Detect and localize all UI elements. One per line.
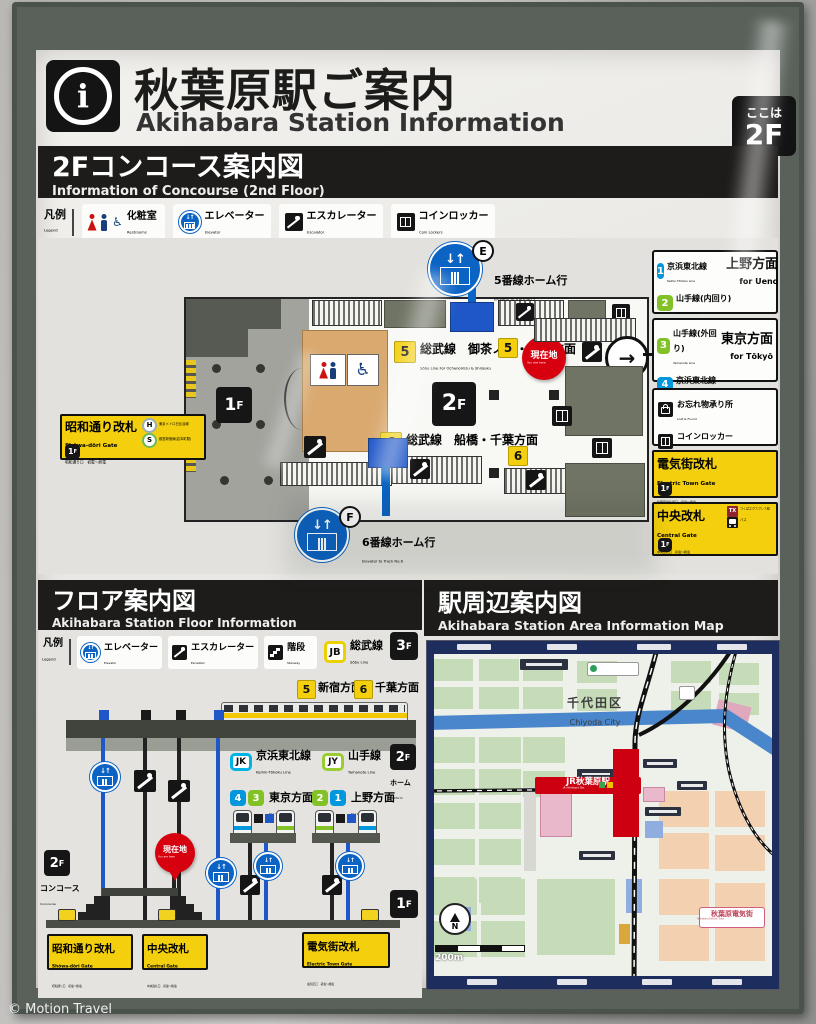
concourse-title-ja: 2Fコンコース案内図	[52, 145, 778, 184]
elevator-icon: ↓↑	[336, 852, 364, 880]
stairs-steps	[94, 896, 110, 904]
concourse-floor-bar	[102, 888, 178, 896]
escalator-icon	[168, 780, 190, 802]
platform-marker-elevator	[265, 814, 274, 823]
coin-locker-icon	[552, 406, 572, 426]
services-box: お忘れ物承り所Lost & Found コインロッカーCoin Lockers …	[652, 388, 778, 446]
elevator-shaft	[450, 302, 494, 332]
structure-block	[186, 327, 248, 357]
coin-locker-icon	[397, 213, 415, 231]
area-title-ja: 駅周辺案内図	[438, 583, 778, 618]
floor-title-ja: フロア案内図	[52, 581, 422, 616]
electric-town-gate-box: 電気街改札 Electric Town Gate 秋葉原電気街口 初電～終電 1…	[652, 450, 778, 498]
floor-1f-badge: 1F	[216, 387, 252, 423]
escalator-icon	[516, 303, 534, 321]
platform-marker	[176, 710, 186, 720]
train-front-yamanote	[276, 810, 295, 835]
scale-bar	[435, 945, 525, 952]
compass-needle	[450, 908, 460, 922]
legend-escalator: エスカレーターEscalator	[279, 204, 383, 240]
platform-marker	[336, 814, 345, 823]
platform-marker-elevator	[99, 710, 109, 720]
train-front-keihin	[358, 810, 377, 835]
platform-marker-elevator	[347, 814, 356, 823]
escalator-icon	[240, 875, 260, 895]
ueno-direction-box: 1 京浜東北線Keihin-Tōhoku Line 上野方面for Ueno 2…	[652, 250, 778, 314]
track3-badge: 3	[657, 338, 670, 354]
man-icon	[100, 214, 108, 231]
watermark: © Motion Travel	[8, 1002, 112, 1017]
gate-marker-yellow	[58, 909, 76, 921]
floor-1f-mini-badge: 1F	[658, 538, 672, 552]
area-section-title: 駅周辺案内図 Akihabara Station Area Informatio…	[424, 580, 778, 636]
strip-label	[457, 644, 491, 650]
train-front-keihin	[233, 810, 252, 835]
map-border-strip-right	[772, 654, 779, 976]
area-title-en: Akihabara Station Area Information Map	[438, 618, 778, 633]
stairs-steps	[86, 904, 110, 912]
elevator-icon: ↓↑	[206, 858, 236, 888]
electric-town-label: 秋葉原電気街Akihabara Electric Town	[699, 907, 765, 928]
map-border-strip-left	[427, 654, 434, 976]
track4-badge: 4	[230, 790, 246, 806]
jk-line-key: JK 京浜東北線Keihin-Tōhoku Line	[230, 746, 312, 778]
platform-marker	[141, 710, 151, 720]
windshield	[236, 813, 249, 822]
transfer-dot	[599, 782, 605, 788]
sign-board: i 秋葉原駅ご案内 Akihabara Station Information …	[36, 50, 780, 988]
legend-elevator: ↓↑ エレベーターElevator	[173, 204, 271, 240]
woman-icon	[88, 214, 96, 231]
track5-badge: 5	[297, 680, 316, 699]
elevator-line	[216, 738, 220, 922]
escalator-icon	[172, 645, 187, 660]
street-name-chip	[643, 759, 677, 768]
bus-icon	[727, 517, 738, 528]
train-yellow-stripe	[222, 713, 407, 718]
elevator-icon: ↓↑	[81, 643, 100, 662]
station-name-chip	[520, 659, 568, 670]
district-label: 千代田区Chiyoda City	[567, 693, 623, 730]
street-name-chip	[579, 851, 615, 860]
strip-label	[712, 979, 742, 985]
stairs-steps	[170, 896, 186, 904]
floor-1f-badge: 1F	[65, 444, 80, 459]
platform-marker	[254, 814, 263, 823]
page-title-en: Akihabara Station Information	[136, 108, 565, 137]
platform-2f-bar	[230, 833, 296, 843]
you-are-here-balloon: 現在地You are here	[155, 833, 195, 873]
legend-restrooms: ♿ 化粧室Restrooms	[82, 204, 164, 240]
direction-tokyo: 東京方面for Tōkyō	[721, 330, 773, 362]
windshield	[279, 813, 292, 822]
wheelchair-icon: ♿	[112, 215, 123, 229]
legend-coin-lockers: コインロッカーCoin Lockers	[391, 204, 495, 240]
stripe	[359, 826, 376, 830]
floor-2f-badge: 2F	[390, 744, 416, 770]
track2-badge: 2	[657, 295, 673, 311]
track5-badge-small: 5	[498, 338, 518, 358]
escalator-icon	[304, 436, 326, 458]
floor-2f-badge: 2F	[432, 382, 476, 426]
track6-badge: 6	[354, 680, 373, 699]
electric-town-gate-label: 電気街改札 Electric Town Gate 電気街口 初電～終電	[302, 932, 390, 968]
jb-line-badge: JB	[324, 641, 346, 663]
jy-line-key: JY 山手線Yamanote Line	[322, 746, 392, 778]
jk-line-badge: JK	[230, 753, 252, 771]
strip-label	[467, 979, 497, 985]
coin-locker-icon	[658, 434, 673, 449]
escalator-icon	[134, 770, 156, 792]
stairs-steps	[78, 912, 110, 920]
shadow-blob	[286, 500, 656, 575]
stripe	[234, 826, 251, 830]
man-icon	[329, 362, 337, 379]
escalator-icon	[410, 459, 430, 479]
floor-diagram: 5 新宿方面for Shinjuku 6 千葉方面for Chiba ↓↑ ↓↑	[38, 662, 422, 992]
stripe	[316, 826, 333, 830]
strip-label	[717, 644, 747, 650]
windshield	[361, 813, 374, 822]
scale-label: 200m	[435, 953, 463, 963]
track1-badge: 1	[657, 263, 664, 279]
stairs-strip	[312, 300, 382, 326]
line-dot	[590, 665, 597, 672]
central-gate-label: 中央改札 Central Gate 中央改札口 初電～終電	[142, 934, 208, 970]
street-name-chip	[645, 807, 681, 816]
concourse-legend: 凡例 Legend ♿ 化粧室Restrooms ↓↑ エレベーターElevat…	[44, 204, 495, 240]
station-name-chip	[679, 686, 695, 700]
info-icon: i	[46, 60, 120, 132]
track6-badge-small: 6	[508, 446, 528, 466]
floor-section-title: フロア案内図 Akihabara Station Floor Informati…	[38, 580, 422, 630]
wall-arc	[284, 368, 320, 430]
direction-ueno: 上野方面for Ueno	[726, 255, 778, 287]
structure-block	[565, 366, 643, 436]
concourse-title-en: Information of Concourse (2nd Floor)	[52, 184, 778, 199]
elevator-shaft	[368, 438, 408, 468]
concourse-section-title: 2Fコンコース案内図 Information of Concourse (2nd…	[38, 146, 778, 198]
showa-gate-label: 昭和通り改札 Shōwa-dōri Gate 昭和通り口 初電～終電	[47, 934, 133, 970]
track1-badge: 1	[330, 790, 346, 806]
concourse-label: コンコースConcourse	[40, 878, 80, 910]
structure-block	[384, 300, 446, 328]
tsukuba-express-icon: TX	[727, 506, 738, 517]
track3-badge: 3	[248, 790, 264, 806]
platform-2f-bar	[312, 833, 380, 843]
info-icon-glyph: i	[54, 67, 112, 125]
woman-icon	[320, 362, 328, 379]
escalator-icon	[582, 342, 602, 362]
wheelchair-sign: ♿	[347, 354, 379, 386]
strip-label	[557, 979, 587, 985]
elevator-icon: ↓↑	[179, 211, 201, 233]
platform-3f-bar	[66, 720, 416, 738]
elevator-icon: ↓↑	[90, 762, 120, 792]
tokyo-direction-box: 3 山手線(外回り)Yamanote Line 東京方面for Tōkyō 4 …	[652, 318, 778, 382]
wheelchair-icon: ♿	[355, 360, 370, 380]
strip-label	[547, 644, 577, 650]
floor-1f-bar	[46, 920, 400, 928]
escalator-icon	[526, 470, 546, 490]
transfer-dot	[607, 782, 613, 788]
hibiya-line-icon: H	[142, 418, 157, 433]
stairs-icon	[268, 645, 283, 660]
pillar-squares	[489, 390, 499, 400]
floor-title-en: Akihabara Station Floor Information	[52, 616, 422, 630]
area-map: 千代田区Chiyoda City JR秋葉原駅JR Akihabara Sta.…	[426, 640, 780, 990]
toei-shinjuku-line-icon: S	[142, 433, 157, 448]
gate-marker-yellow	[361, 909, 379, 921]
floor-2f-badge: 2F	[44, 850, 70, 876]
elevator-e-label: 5番線ホーム行Elevator to Track No.5	[494, 270, 567, 305]
windshield	[318, 813, 331, 822]
showa-gate-box: 昭和通り改札 Shōwa-dōri Gate 昭和通り口 初電～終電 H東京メト…	[60, 414, 206, 460]
track5-badge: 5	[394, 341, 416, 363]
station-label-band: JR秋葉原駅JR Akihabara Sta.	[535, 777, 641, 794]
elevator-icon: ↓↑	[254, 852, 282, 880]
street-name-chip	[677, 781, 707, 790]
jy-line-badge: JY	[322, 753, 344, 771]
coin-locker-icon	[592, 438, 612, 458]
ticket-gate-marks	[186, 360, 196, 398]
strip-label	[637, 644, 671, 650]
escalator-icon	[285, 213, 303, 231]
structure-block	[186, 299, 281, 329]
compass-n: N	[452, 923, 459, 931]
pillar-dots	[212, 364, 221, 373]
strip-label	[642, 979, 672, 985]
station-sign-photo: i 秋葉原駅ご案内 Akihabara Station Information …	[0, 0, 816, 1024]
stripe	[277, 826, 294, 830]
train-front-yamanote	[315, 810, 334, 835]
floor-1f-mini-badge: 1F	[658, 482, 672, 496]
elevator-e-letter: E	[472, 240, 494, 262]
track2-badge: 2	[312, 790, 328, 806]
lost-and-found-icon	[658, 402, 673, 417]
you-are-here-balloon: 現在地You are here	[522, 336, 566, 380]
escalator-icon	[322, 875, 342, 895]
gate-marker-yellow	[158, 909, 176, 921]
floor-1f-badge: 1F	[390, 890, 418, 918]
compass: N	[439, 903, 471, 935]
central-gate-box: 中央改札 Central Gate 中央改札口 初電～終電 TXつくばエクスプレ…	[652, 502, 778, 556]
platform-marker-elevator	[214, 710, 224, 720]
train-windows	[224, 705, 405, 712]
floor-3f-badge: 3F	[390, 632, 418, 660]
station-name-chip	[587, 662, 639, 676]
legend-key: 凡例 Legend	[44, 209, 74, 236]
